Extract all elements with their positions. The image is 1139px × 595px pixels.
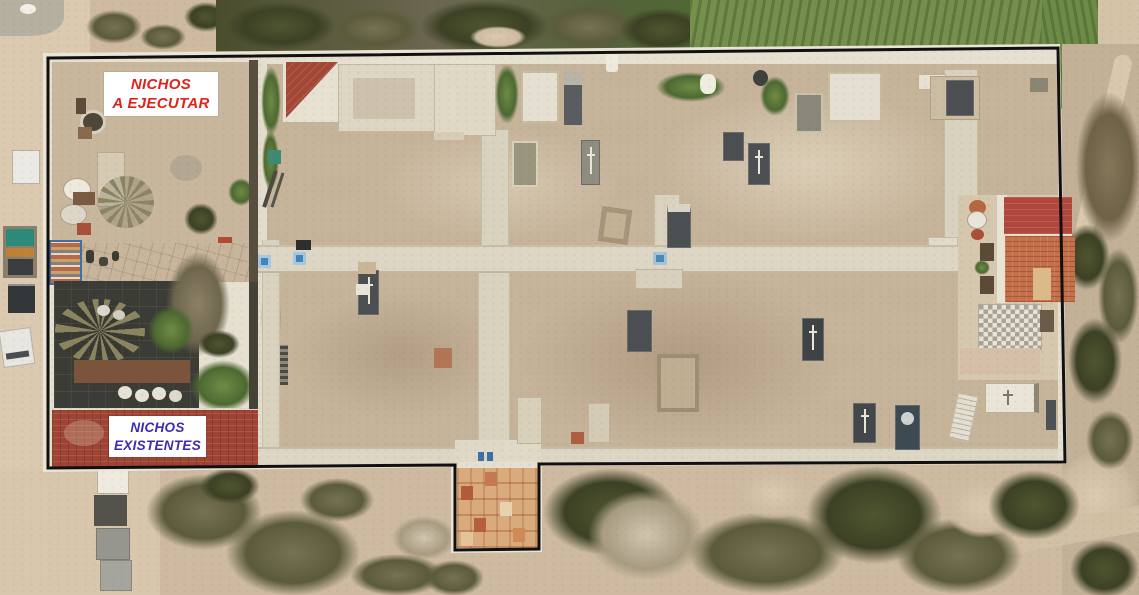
site-boundary-polygon: [48, 48, 1065, 550]
label-line: NICHOS: [131, 75, 191, 94]
aerial-photo-cemetery: NICHOS A EJECUTAR NICHOS EXISTENTES: [0, 0, 1139, 595]
label-line: NICHOS: [130, 419, 184, 436]
annotation-label-nichos-existentes: NICHOS EXISTENTES: [109, 416, 206, 457]
label-line: EXISTENTES: [114, 437, 201, 454]
label-line: A EJECUTAR: [112, 94, 209, 113]
annotation-label-nichos-a-ejecutar: NICHOS A EJECUTAR: [104, 72, 218, 116]
